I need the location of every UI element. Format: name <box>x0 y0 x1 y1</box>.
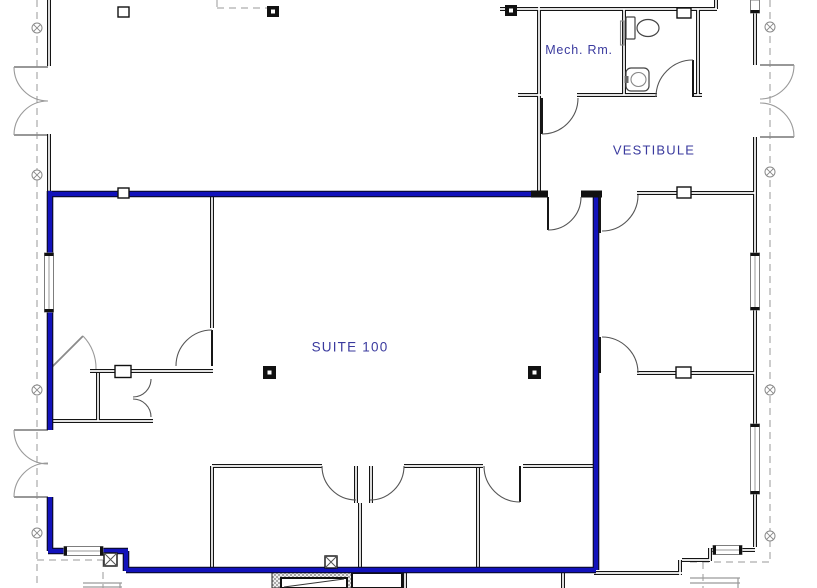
restroom-fixtures <box>621 17 660 91</box>
floor-plan-canvas <box>0 0 817 588</box>
grid-bubble-icon <box>765 22 775 32</box>
window-right-upper <box>751 253 760 310</box>
window-bottom-left <box>64 547 103 556</box>
grid-bubble-icon <box>32 528 42 538</box>
vestibule-label: VESTIBULE <box>613 143 695 158</box>
toilet-icon <box>621 17 660 45</box>
wall-panel <box>676 367 691 378</box>
entry-jamb-left <box>531 191 548 198</box>
interior-door-swings <box>133 60 693 502</box>
wall-panel <box>677 8 691 18</box>
grid-bubble-icon <box>32 23 42 33</box>
column-marker-icon <box>263 366 276 379</box>
steel-column-icon <box>325 556 337 568</box>
wall-pier <box>115 366 131 378</box>
suite-boundary <box>48 191 602 572</box>
grid-bubble-icon <box>32 170 42 180</box>
entry-jamb-right <box>581 191 602 198</box>
suite-label: SUITE 100 <box>312 340 389 355</box>
window-bottom-right <box>713 546 742 555</box>
column-marker-icon <box>528 366 541 379</box>
exterior-steps <box>83 578 740 588</box>
window-right-top <box>751 0 760 13</box>
column-markers <box>104 5 691 568</box>
mech-room-label: Mech. Rm. <box>545 43 613 57</box>
wall-panel <box>677 187 691 198</box>
grid-bubble-icon <box>32 385 42 395</box>
grid-lines <box>37 0 770 588</box>
grid-bubble-icon <box>765 531 775 541</box>
column-marker-icon <box>267 6 279 17</box>
grid-symbols <box>32 22 775 541</box>
window-right-lower <box>751 424 760 494</box>
column-marker-icon <box>118 188 129 198</box>
exterior-door-swings <box>14 65 794 497</box>
floor-plan: Mech. Rm. VESTIBULE SUITE 100 <box>0 0 817 588</box>
stair-shaft-icon <box>272 572 402 588</box>
windows <box>45 0 760 556</box>
column-marker-icon <box>118 7 129 17</box>
grid-bubble-icon <box>765 385 775 395</box>
grid-bubble-icon <box>765 167 775 177</box>
column-marker-icon <box>505 5 517 16</box>
sink-icon <box>625 68 650 91</box>
window-left-mid <box>45 253 54 312</box>
steel-column-icon <box>104 553 117 566</box>
faucet <box>625 76 629 83</box>
